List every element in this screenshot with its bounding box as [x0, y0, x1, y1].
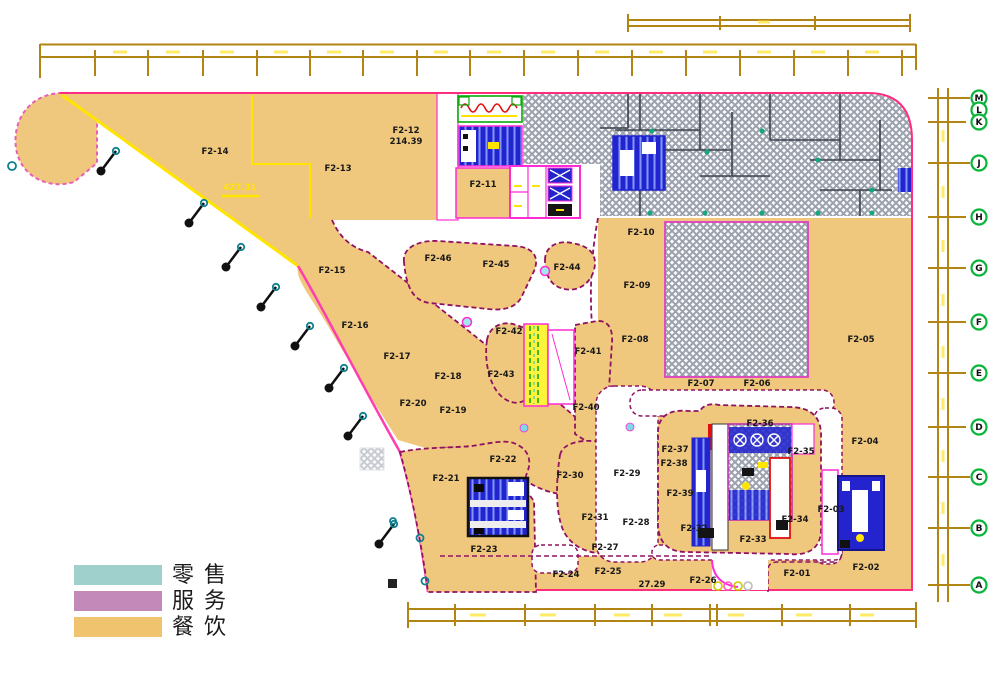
room-label-f2-17: F2-17	[383, 352, 410, 362]
room-label-f2-30: F2-30	[556, 471, 583, 481]
area-label-bottom: 27.29	[639, 580, 666, 590]
grid-bubble: E	[972, 366, 987, 381]
elevator-icons	[548, 168, 572, 216]
room-label-f2-26: F2-26	[689, 576, 716, 586]
room-label-f2-12: F2-12	[392, 126, 419, 136]
grid-letter: J	[976, 159, 980, 169]
legend: 零售 服务 餐饮	[74, 565, 236, 643]
room-label-f2-20: F2-20	[399, 399, 426, 409]
room-label-f2-25: F2-25	[594, 567, 621, 577]
room-label-f2-22: F2-22	[489, 455, 516, 465]
grid-bubble: A	[972, 578, 987, 593]
south-entrance	[712, 558, 768, 590]
room-label-f2-27: F2-27	[591, 543, 618, 553]
legend-swatch-dining	[74, 617, 162, 637]
room-label-f2-42: F2-42	[495, 327, 522, 337]
legend-label-service: 服务	[172, 591, 236, 611]
room-label-f2-16: F2-16	[341, 321, 368, 331]
grid-letter: H	[975, 213, 983, 223]
grid-bubble: D	[972, 420, 987, 435]
central-escalator	[524, 324, 574, 406]
legend-row-retail: 零售	[74, 565, 236, 585]
grid-letter: G	[975, 264, 982, 274]
island-f2-46-45	[404, 241, 536, 310]
grid-bubble: H	[972, 210, 987, 225]
legend-swatch-retail	[74, 565, 162, 585]
room-label-f2-24: F2-24	[552, 570, 579, 580]
grid-letter: B	[976, 524, 983, 534]
room-label-f2-28: F2-28	[622, 518, 649, 528]
dimension-line-bottom	[408, 602, 916, 628]
room-label-f2-11: F2-11	[469, 180, 496, 190]
legend-row-dining: 餐饮	[74, 617, 236, 637]
grid-letter: K	[976, 118, 984, 128]
room-label-f2-08: F2-08	[621, 335, 648, 345]
room-label-f2-01: F2-01	[783, 569, 810, 579]
room-label-f2-29: F2-29	[613, 469, 640, 479]
legend-row-service: 服务	[74, 591, 236, 611]
room-label-f2-39: F2-39	[666, 489, 693, 499]
room-label-f2-23: F2-23	[470, 545, 497, 555]
room-label-f2-07: F2-07	[687, 379, 714, 389]
room-label-f2-38: F2-38	[660, 459, 687, 469]
area-label-f2-12: 214.39	[390, 137, 423, 147]
atrium-void	[665, 222, 808, 377]
room-label-f2-43: F2-43	[487, 370, 514, 380]
dimension-line-top	[40, 14, 916, 78]
area-label-f2-14: 427.31	[224, 183, 257, 193]
room-label-f2-41: F2-41	[574, 347, 601, 357]
room-label-f2-21: F2-21	[432, 474, 459, 484]
grid-letter: A	[976, 581, 983, 591]
room-label-f2-10: F2-10	[627, 228, 654, 238]
room-label-f2-09: F2-09	[623, 281, 650, 291]
room-f2-11-shape	[456, 168, 510, 218]
hatched-box	[360, 448, 384, 470]
grid-letter: C	[976, 473, 983, 483]
room-label-f2-33: F2-33	[739, 535, 766, 545]
grid-letter: F	[976, 318, 982, 328]
back-of-house-hatched	[523, 93, 912, 216]
legend-swatch-service	[74, 591, 162, 611]
grid-bubble: K	[972, 115, 987, 130]
grid-bubble: G	[972, 261, 987, 276]
room-label-f2-05: F2-05	[847, 335, 874, 345]
room-label-f2-36: F2-36	[746, 419, 773, 429]
room-label-f2-03: F2-03	[817, 505, 844, 515]
room-label-f2-13: F2-13	[324, 164, 351, 174]
room-label-f2-31: F2-31	[581, 513, 608, 523]
legend-label-retail: 零售	[172, 565, 236, 585]
room-label-f2-45: F2-45	[482, 260, 509, 270]
grid-letter: D	[975, 423, 982, 433]
room-label-f2-37: F2-37	[661, 445, 688, 455]
room-label-f2-15: F2-15	[318, 266, 345, 276]
grid-bubble: F	[972, 315, 987, 330]
floor-plan-page: M L K J H G F E D C B A F2-14 F2-13 F2-1…	[0, 0, 1000, 689]
grid-bubble: J	[972, 156, 987, 171]
grid-bubbles: M L K J H G F E D C B A	[972, 91, 987, 593]
room-label-f2-19: F2-19	[439, 406, 466, 416]
room-label-f2-44: F2-44	[553, 263, 580, 273]
grid-bubble: C	[972, 470, 987, 485]
room-label-f2-04: F2-04	[851, 437, 878, 447]
legend-label-dining: 餐饮	[172, 617, 236, 637]
room-label-f2-32: F2-32	[680, 524, 707, 534]
dimension-line-right	[928, 88, 970, 602]
room-label-f2-35: F2-35	[787, 447, 814, 457]
room-label-f2-14: F2-14	[201, 147, 228, 157]
grid-bubble: B	[972, 521, 987, 536]
black-marker	[388, 579, 397, 588]
escalator-core-southwest	[468, 478, 528, 536]
room-label-f2-18: F2-18	[434, 372, 461, 382]
room-label-f2-02: F2-02	[852, 563, 879, 573]
room-label-f2-40: F2-40	[572, 403, 599, 413]
grid-letter: E	[976, 369, 982, 379]
room-label-f2-46: F2-46	[424, 254, 451, 264]
room-label-f2-34: F2-34	[781, 515, 808, 525]
room-label-f2-06: F2-06	[743, 379, 770, 389]
